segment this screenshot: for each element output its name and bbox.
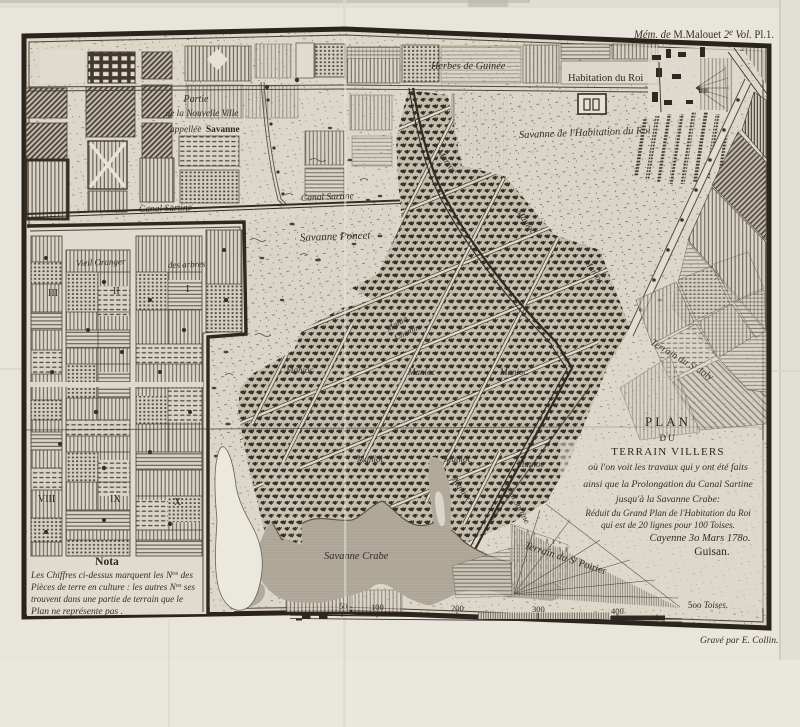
svg-text:Nota: Nota xyxy=(95,556,119,568)
svg-text:Plan ne représente pas .: Plan ne représente pas . xyxy=(30,606,123,616)
svg-text:de la Nouvelle Ville: de la Nouvelle Ville xyxy=(166,109,239,119)
svg-text:I: I xyxy=(186,284,189,295)
svg-text:Habitation du Roi: Habitation du Roi xyxy=(568,73,643,84)
svg-text:jusqu'à la Savanne Crabe:: jusqu'à la Savanne Crabe: xyxy=(614,494,720,505)
svg-text:Savanne Poncet: Savanne Poncet xyxy=(300,230,372,244)
svg-text:DU: DU xyxy=(660,433,677,443)
svg-text:Partie: Partie xyxy=(183,94,210,105)
svg-text:Cayenne 3o Mars 178o.: Cayenne 3o Mars 178o. xyxy=(650,533,751,544)
svg-text:ainsi que la Prolongation du C: ainsi que la Prolongation du Canal Sarti… xyxy=(583,479,753,490)
svg-text:Guisan.: Guisan. xyxy=(694,546,730,558)
svg-text:Manioc: Manioc xyxy=(285,365,314,375)
svg-text:appellée: appellée xyxy=(170,125,202,135)
svg-text:Savanne: Savanne xyxy=(206,125,240,135)
svg-text:trouvent dans une partie de te: trouvent dans une partie de terrain que … xyxy=(31,594,183,604)
svg-text:Savanne Crabe: Savanne Crabe xyxy=(324,551,389,562)
svg-text:IX: IX xyxy=(110,494,121,505)
svg-text:VIII: VIII xyxy=(38,494,55,505)
svg-text:II: II xyxy=(113,286,120,297)
svg-text:Manioc: Manioc xyxy=(443,454,472,464)
svg-text:Mém. de M.Malouet 2e Vol. Pl.1: Mém. de M.Malouet 2e Vol. Pl.1. xyxy=(633,27,774,41)
svg-text:X: X xyxy=(174,497,182,508)
svg-text:des arbres: des arbres xyxy=(168,259,206,270)
svg-text:Réduit du Grand Plan de l'Habi: Réduit du Grand Plan de l'Habitation du … xyxy=(584,508,751,518)
svg-text:III: III xyxy=(48,288,58,299)
svg-text:100: 100 xyxy=(371,602,384,612)
svg-text:Manioc: Manioc xyxy=(407,367,436,377)
svg-text:5oo Toises.: 5oo Toises. xyxy=(688,600,728,610)
svg-text:Pièces de terre en culture : l: Pièces de terre en culture : les autres … xyxy=(30,582,195,592)
svg-text:Manioc: Manioc xyxy=(499,367,528,377)
svg-text:Les Chiffres ci-dessus marquen: Les Chiffres ci-dessus marquent les Nos … xyxy=(30,570,193,580)
svg-text:Manioc: Manioc xyxy=(516,459,545,469)
svg-text:où l'on voit les travaux qui y: où l'on voit les travaux qui y ont été f… xyxy=(588,462,748,473)
svg-text:300: 300 xyxy=(532,604,545,614)
svg-text:qui est de 20 lignes pour 100: qui est de 20 lignes pour 100 Toises. xyxy=(601,520,735,530)
svg-text:Herbes de Guinée: Herbes de Guinée xyxy=(430,61,506,72)
svg-text:200: 200 xyxy=(451,603,464,613)
svg-text:Manioc: Manioc xyxy=(356,454,385,464)
svg-text:TERRAIN VILLERS: TERRAIN VILLERS xyxy=(611,446,724,458)
svg-text:400: 400 xyxy=(611,606,624,616)
svg-text:Canal Sartine: Canal Sartine xyxy=(139,203,192,215)
svg-text:Gravé par E. Collin.: Gravé par E. Collin. xyxy=(700,636,778,646)
svg-text:Vieil Oranger: Vieil Oranger xyxy=(76,256,126,268)
